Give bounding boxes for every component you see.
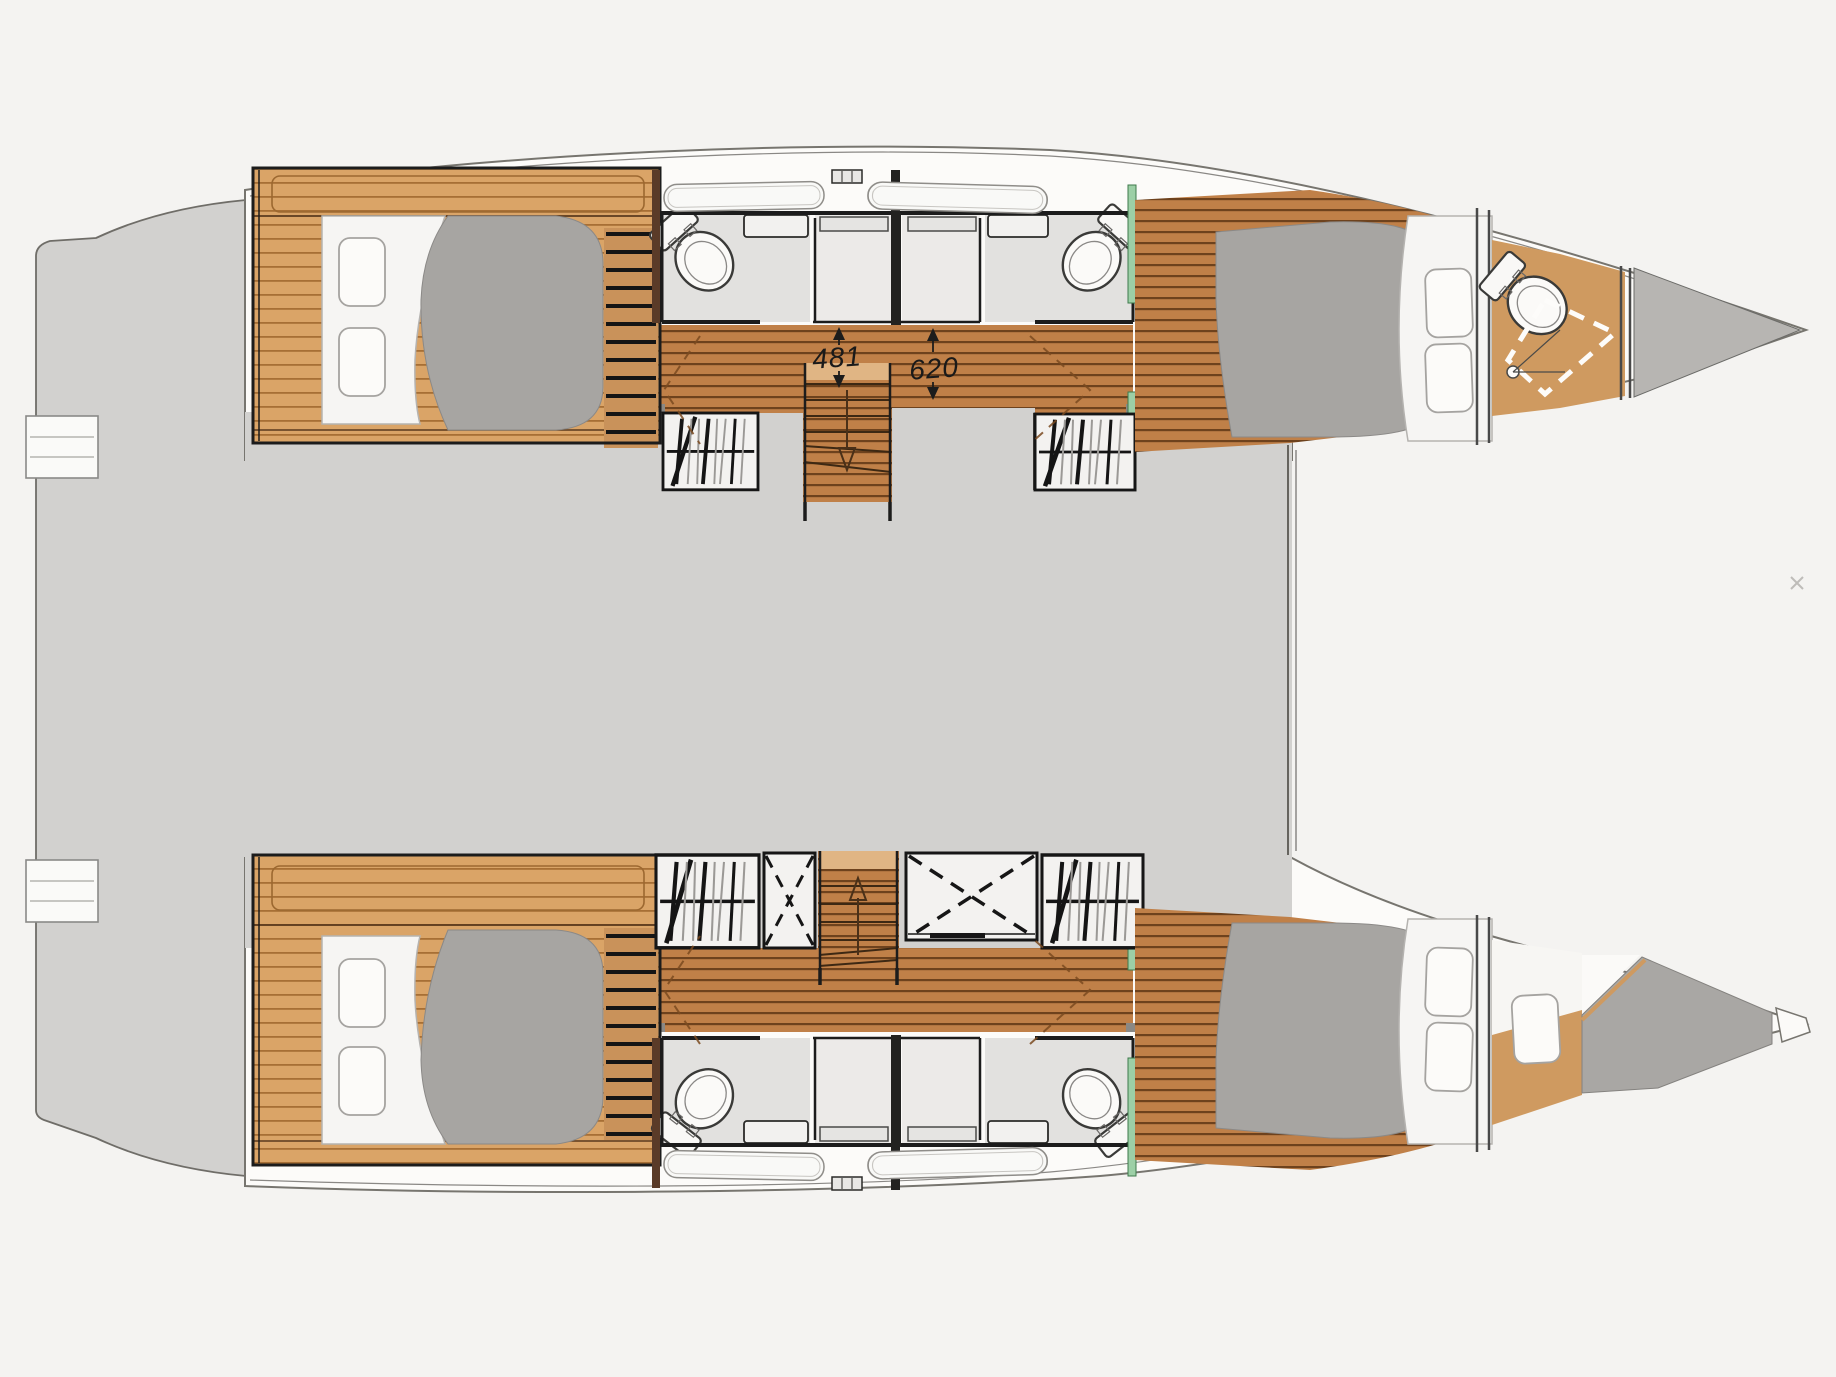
port-forward-cabin: [1135, 190, 1492, 452]
louvered-locker: [604, 228, 658, 448]
wardrobe-hanging: [656, 855, 759, 948]
port-aft-cabin: [253, 168, 660, 448]
sliding-door-green: [1128, 1058, 1136, 1176]
stbd-forward-cabin: [1135, 908, 1492, 1170]
swim-step-starboard: [26, 860, 98, 922]
hull-window: [868, 1147, 1048, 1179]
vanity-sink: [744, 215, 808, 237]
catamaran-layout-plan: 481 620: [0, 0, 1836, 1377]
vanity-sink: [988, 1121, 1048, 1143]
pillow: [1425, 268, 1473, 338]
locker-face: [604, 928, 658, 1140]
pillow: [1425, 343, 1473, 413]
vanity-sink: [744, 1121, 808, 1143]
center-bulkhead: [891, 213, 901, 325]
sliding-door-green: [1128, 185, 1136, 303]
shower-seat: [820, 1127, 888, 1141]
pillow: [339, 959, 385, 1027]
shower-seat: [908, 1127, 976, 1141]
hull-window: [664, 1150, 825, 1180]
x-box-large: [906, 853, 1037, 940]
aft-cabin-bulkhead: [652, 1038, 660, 1188]
pillow: [1425, 1022, 1473, 1092]
hull-window: [664, 181, 825, 211]
aft-cabin-bulkhead: [652, 170, 660, 323]
pillow: [1511, 994, 1560, 1064]
shower-seat: [820, 217, 888, 231]
boat-plan-page: 481 620: [0, 0, 1836, 1377]
shower-seat: [908, 217, 976, 231]
staircase-up: [818, 851, 899, 985]
dimension-label-fwd: 620: [908, 351, 960, 385]
louvered-locker: [604, 928, 658, 1140]
center-bulkhead: [891, 1035, 901, 1147]
deck-fitting: [832, 170, 862, 183]
corridor-post: [1126, 1023, 1135, 1032]
vanity-sink: [988, 215, 1048, 237]
stair-top-step: [819, 851, 898, 869]
pillow: [339, 328, 385, 396]
dimension-label-aft: 481: [811, 340, 863, 374]
pillow: [339, 238, 385, 306]
stair-landing: [892, 408, 1035, 492]
x-cabinet-small: [764, 853, 815, 948]
port-corridor-floor: [660, 325, 1133, 413]
port-aft-bed: [421, 216, 603, 430]
aft-deck: [26, 200, 246, 1176]
stbd-aft-cabin: [253, 855, 660, 1165]
wardrobe-hanging: [663, 413, 758, 490]
aft-deck-surface: [36, 200, 246, 1176]
hull-window: [868, 182, 1048, 214]
pillow: [1425, 947, 1473, 1017]
pillow: [339, 1047, 385, 1115]
stbd-aft-bed: [421, 930, 603, 1144]
staircase-down: [803, 363, 892, 521]
swim-step-port: [26, 416, 98, 478]
wardrobe-hanging: [1042, 855, 1143, 948]
deck-fitting: [832, 1177, 862, 1190]
